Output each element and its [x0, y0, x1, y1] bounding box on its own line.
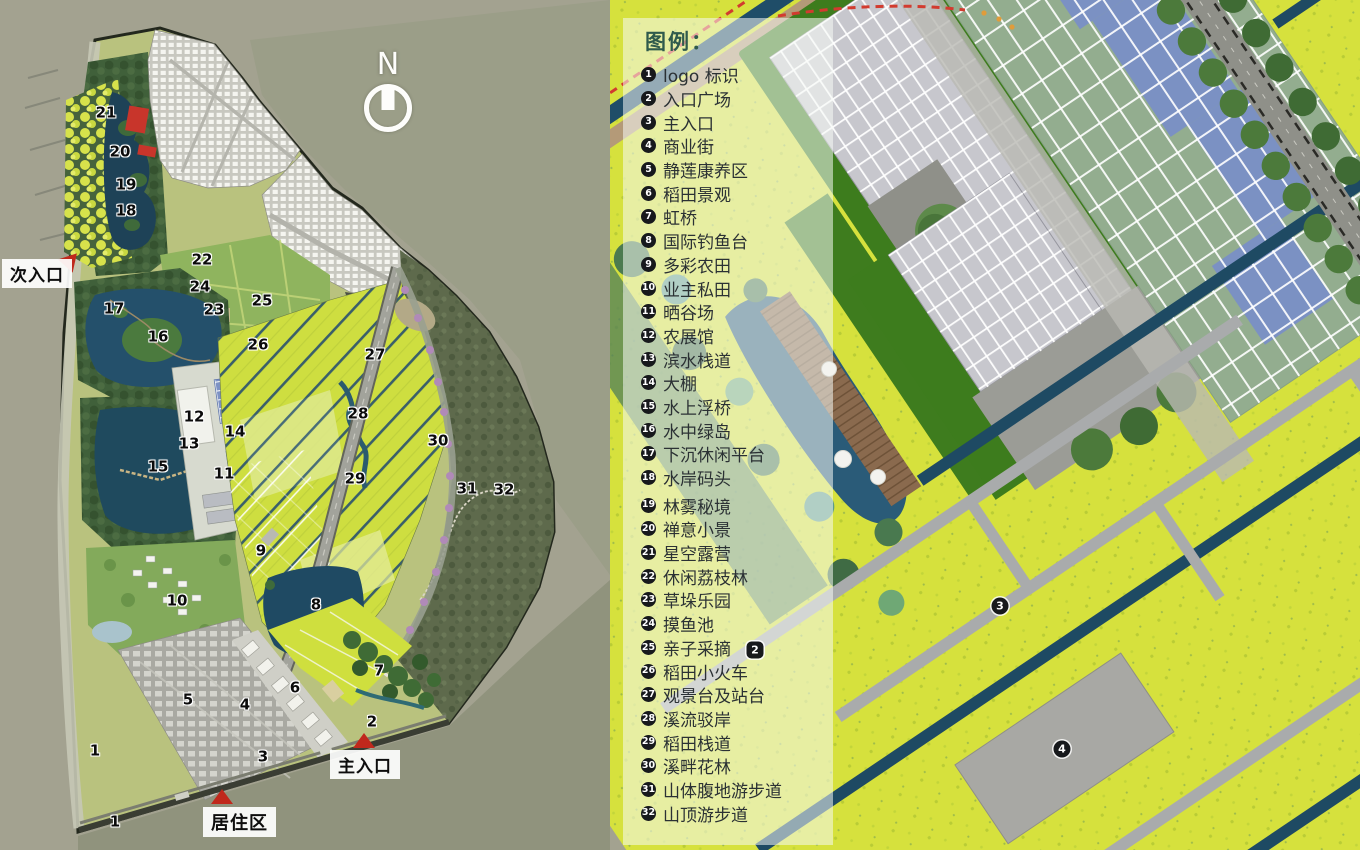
legend-item: 10业主私田 — [641, 276, 833, 300]
residential-label: 居住区 — [203, 807, 276, 837]
map-number-26: 26 — [248, 338, 269, 353]
detail-map-number-3: 3 — [992, 598, 1009, 615]
legend-item: 2入口广场 — [641, 87, 833, 111]
legend-item: 22休闲荔枝林 — [641, 564, 833, 588]
legend-item-label: 林雾秘境 — [663, 493, 731, 518]
map-number-2: 2 — [367, 715, 377, 730]
umbrella-dot — [821, 361, 837, 377]
legend-item-number: 19 — [641, 498, 656, 513]
legend-item: 30溪畔花林 — [641, 754, 833, 778]
legend-item: 13滨水栈道 — [641, 347, 833, 371]
legend-item-number: 4 — [641, 138, 656, 153]
legend-item-label: 溪畔花林 — [663, 753, 731, 778]
map-number-18: 18 — [116, 204, 137, 219]
legend-item: 11晒谷场 — [641, 300, 833, 324]
north-compass: N — [358, 50, 418, 132]
main-entrance-label: 主入口 — [330, 750, 400, 779]
legend-item-number: 11 — [641, 304, 656, 319]
legend-item-label: 下沉休闲平台 — [663, 441, 765, 466]
map-number-24: 24 — [190, 280, 211, 295]
legend-item-number: 5 — [641, 162, 656, 177]
legend-item: 21星空露营 — [641, 541, 833, 565]
legend-item: 14大棚 — [641, 371, 833, 395]
legend-item-number: 9 — [641, 257, 656, 272]
legend-item-number: 32 — [641, 806, 656, 821]
legend-item-number: 23 — [641, 592, 656, 607]
legend-item-label: 亲子采摘 — [663, 635, 731, 660]
legend-item: 18水岸码头 — [641, 466, 833, 490]
compass-n-label: N — [358, 50, 418, 80]
map-number-6: 6 — [290, 681, 300, 696]
legend-item: 32山顶游步道 — [641, 801, 833, 825]
map-number-27: 27 — [365, 348, 386, 363]
residential-arrow — [211, 789, 233, 804]
legend-item: 31山体腹地游步道 — [641, 778, 833, 802]
legend-item: 1logo 标识 — [641, 63, 833, 87]
legend-item: 25亲子采摘 — [641, 636, 833, 660]
secondary-entrance-label: 次入口 — [2, 259, 72, 288]
master-plan-map — [0, 0, 610, 850]
map-number-23: 23 — [204, 303, 225, 318]
legend-item-number: 24 — [641, 616, 656, 631]
compass-ring — [364, 84, 412, 132]
legend-item-number: 31 — [641, 782, 656, 797]
masterplan-screenshot: N 次入口 主入口 居住区 图例： 1logo 标识2入口广场3主入口4商业街5… — [0, 0, 1360, 850]
legend-item-label: logo 标识 — [663, 62, 739, 87]
map-number-32: 32 — [494, 483, 515, 498]
legend-item-label: 观景台及站台 — [663, 682, 765, 707]
legend-item-label: 水岸码头 — [663, 465, 731, 490]
map-number-12: 12 — [184, 410, 205, 425]
legend-item-label: 农展馆 — [663, 323, 714, 348]
legend-item-label: 草垛乐园 — [663, 587, 731, 612]
legend-item: 29稻田栈道 — [641, 730, 833, 754]
map-number-21: 21 — [96, 106, 117, 121]
legend-panel: 图例： 1logo 标识2入口广场3主入口4商业街5静莲康养区6稻田景观7虹桥8… — [623, 18, 833, 845]
map-number-19: 19 — [116, 178, 137, 193]
legend-item-number: 29 — [641, 735, 656, 750]
map-number-7: 7 — [374, 664, 384, 679]
legend-item-number: 3 — [641, 115, 656, 130]
legend-item-label: 商业街 — [663, 133, 714, 158]
detail-map-number-4: 4 — [1054, 741, 1071, 758]
legend-item: 17下沉休闲平台 — [641, 442, 833, 466]
legend-item-number: 17 — [641, 446, 656, 461]
map-number-5: 5 — [183, 693, 193, 708]
map-number-14: 14 — [225, 425, 246, 440]
legend-item: 23草垛乐园 — [641, 588, 833, 612]
legend-item-label: 晒谷场 — [663, 299, 714, 324]
map-number-8: 8 — [311, 598, 321, 613]
legend-item-number: 12 — [641, 328, 656, 343]
legend-item-number: 7 — [641, 209, 656, 224]
legend-item-label: 星空露营 — [663, 540, 731, 565]
legend-item: 8国际钓鱼台 — [641, 229, 833, 253]
legend-item: 27观景台及站台 — [641, 683, 833, 707]
legend-item-label: 禅意小景 — [663, 516, 731, 541]
legend-item-number: 10 — [641, 281, 656, 296]
legend-item-label: 摸鱼池 — [663, 611, 714, 636]
legend-item-label: 稻田栈道 — [663, 730, 731, 755]
map-number-28: 28 — [348, 407, 369, 422]
legend-item-label: 虹桥 — [663, 204, 697, 229]
compass-needle — [382, 89, 395, 110]
legend-item-label: 水上浮桥 — [663, 394, 731, 419]
umbrella-dot — [834, 450, 852, 468]
legend-item-number: 14 — [641, 375, 656, 390]
legend-item-label: 休闲荔枝林 — [663, 564, 748, 589]
legend-item-label: 静莲康养区 — [663, 157, 748, 182]
legend-item-label: 稻田景观 — [663, 181, 731, 206]
legend-item: 7虹桥 — [641, 205, 833, 229]
legend-item-label: 入口广场 — [663, 86, 731, 111]
map-number-13: 13 — [179, 437, 200, 452]
legend-item-number: 16 — [641, 423, 656, 438]
legend-item-number: 1 — [641, 67, 656, 82]
legend-item-number: 2 — [641, 91, 656, 106]
legend-item-number: 20 — [641, 521, 656, 536]
legend-item: 28溪流驳岸 — [641, 707, 833, 731]
legend-item: 3主入口 — [641, 110, 833, 134]
map-number-17: 17 — [104, 302, 125, 317]
map-number-29: 29 — [345, 472, 366, 487]
legend-item: 24摸鱼池 — [641, 612, 833, 636]
legend-item: 6稻田景观 — [641, 181, 833, 205]
legend-item-label: 溪流驳岸 — [663, 706, 731, 731]
map-number-3: 3 — [258, 750, 268, 765]
detail-map-number-2: 2 — [747, 642, 764, 659]
umbrella-dot — [870, 469, 886, 485]
map-number-9: 9 — [256, 544, 266, 559]
legend-item-number: 28 — [641, 711, 656, 726]
legend-title: 图例： — [645, 26, 833, 56]
map-number-1: 1 — [90, 744, 100, 759]
legend-item: 26稻田小火车 — [641, 659, 833, 683]
legend-item-number: 13 — [641, 352, 656, 367]
legend-item-label: 业主私田 — [663, 276, 731, 301]
legend-item: 9多彩农田 — [641, 253, 833, 277]
map-number-4: 4 — [240, 698, 250, 713]
legend-item-label: 大棚 — [663, 370, 697, 395]
map-number-15: 15 — [148, 460, 169, 475]
legend-item: 4商业街 — [641, 134, 833, 158]
legend-item-number: 25 — [641, 640, 656, 655]
legend-item: 19林雾秘境 — [641, 493, 833, 517]
map-number-20: 20 — [110, 145, 131, 160]
legend-item-label: 国际钓鱼台 — [663, 228, 748, 253]
map-number-10: 10 — [167, 594, 188, 609]
legend-item-label: 滨水栈道 — [663, 347, 731, 372]
legend-item-number: 15 — [641, 399, 656, 414]
legend-item-label: 主入口 — [663, 110, 714, 135]
legend-items: 1logo 标识2入口广场3主入口4商业街5静莲康养区6稻田景观7虹桥8国际钓鱼… — [641, 63, 833, 825]
legend-item: 12农展馆 — [641, 324, 833, 348]
legend-item-number: 18 — [641, 470, 656, 485]
legend-item-label: 山体腹地游步道 — [663, 777, 782, 802]
map-number-16: 16 — [148, 330, 169, 345]
legend-item-number: 27 — [641, 687, 656, 702]
legend-item-label: 山顶游步道 — [663, 801, 748, 826]
main-entrance-arrow — [353, 733, 375, 748]
legend-item: 5静莲康养区 — [641, 158, 833, 182]
map-number-31: 31 — [457, 482, 478, 497]
map-number-1: 1 — [110, 815, 120, 830]
legend-item-label: 多彩农田 — [663, 252, 731, 277]
legend-item-number: 22 — [641, 569, 656, 584]
legend-item-label: 稻田小火车 — [663, 659, 748, 684]
legend-item-number: 8 — [641, 233, 656, 248]
map-number-25: 25 — [252, 294, 273, 309]
legend-item-number: 26 — [641, 664, 656, 679]
map-number-30: 30 — [428, 434, 449, 449]
legend-item-label: 水中绿岛 — [663, 418, 731, 443]
legend-item-number: 30 — [641, 758, 656, 773]
legend-item: 15水上浮桥 — [641, 395, 833, 419]
map-number-11: 11 — [214, 467, 235, 482]
legend-item: 16水中绿岛 — [641, 418, 833, 442]
legend-item: 20禅意小景 — [641, 517, 833, 541]
legend-item-number: 6 — [641, 186, 656, 201]
legend-item-number: 21 — [641, 545, 656, 560]
map-number-22: 22 — [192, 253, 213, 268]
